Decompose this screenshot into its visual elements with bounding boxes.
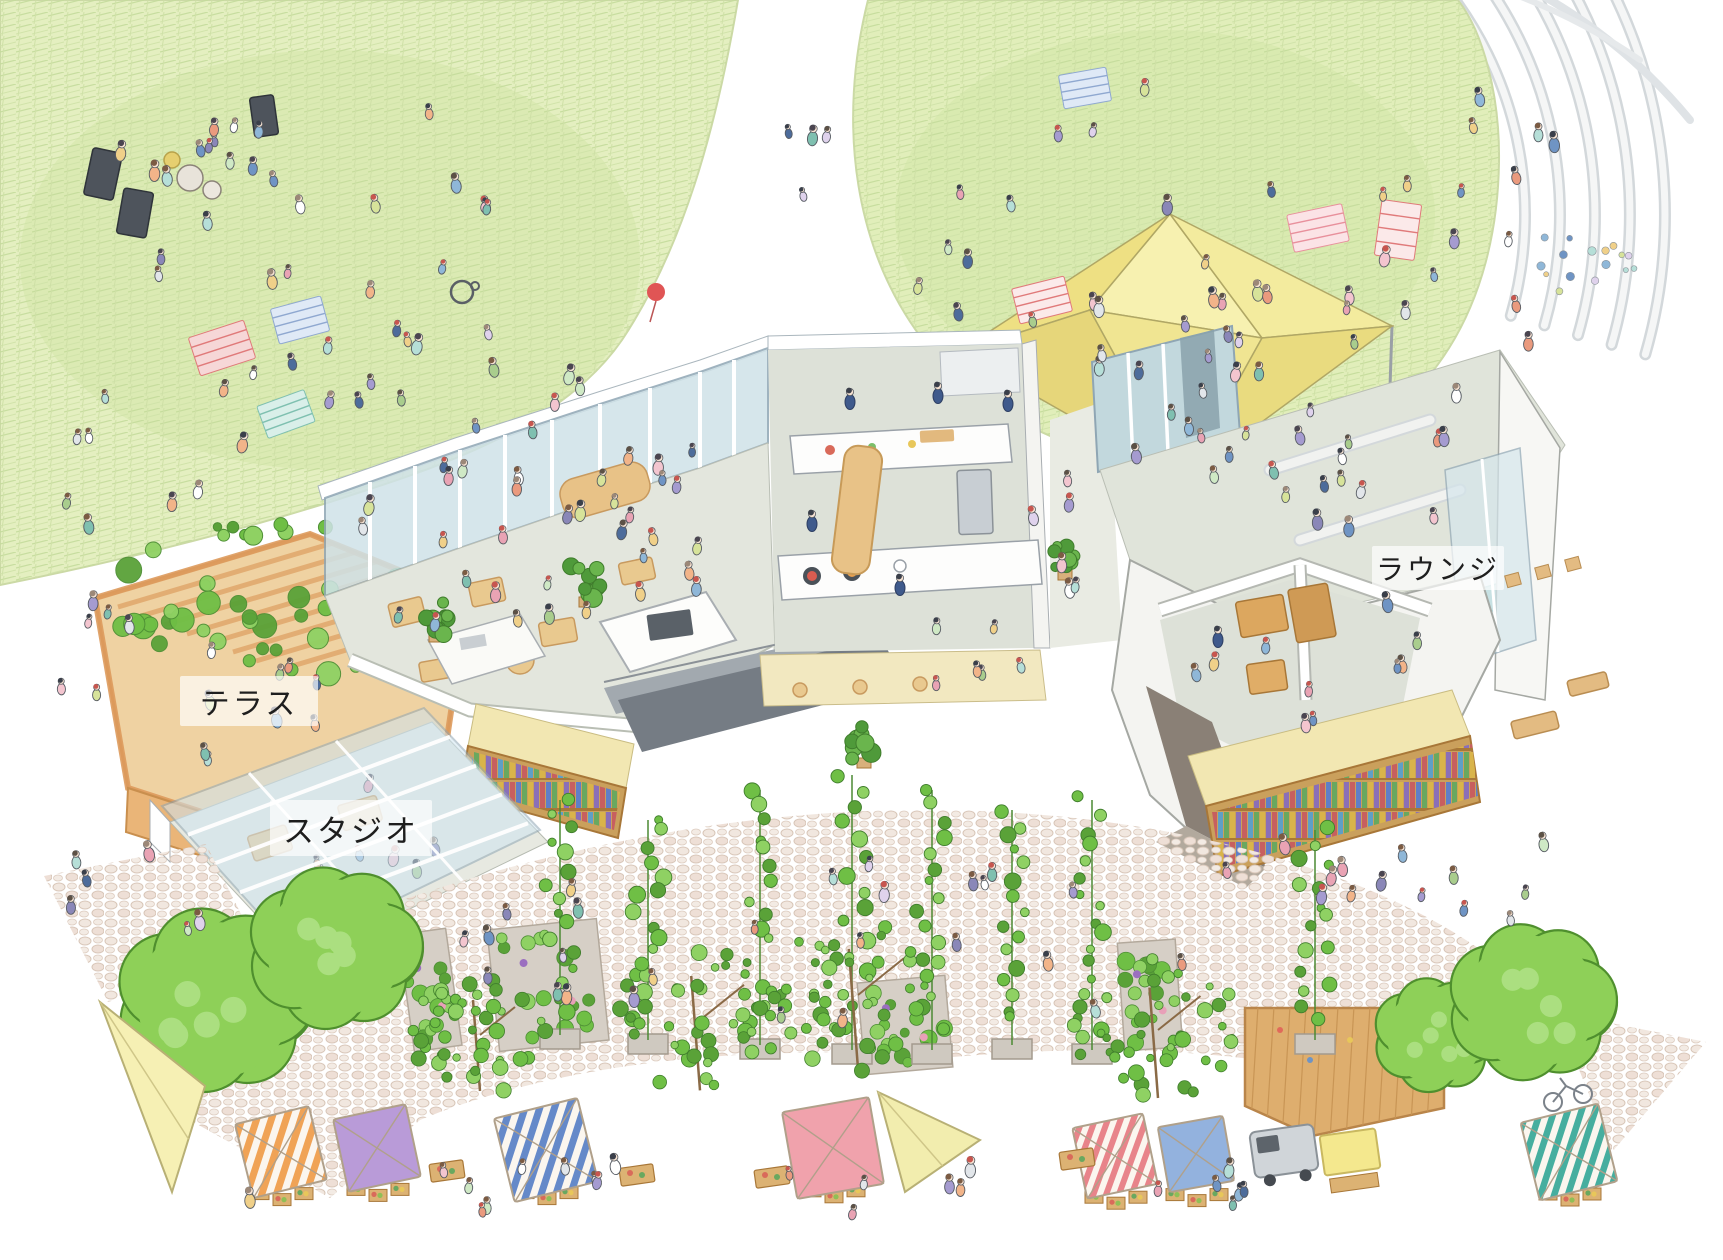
- person-part: [933, 675, 938, 680]
- stall-table: [754, 1166, 790, 1189]
- band-equipment-part: [177, 165, 203, 191]
- vine-trellis-part: [857, 786, 869, 798]
- vine-trellis-part: [1295, 966, 1306, 977]
- person-part: [1094, 362, 1104, 376]
- leafy-tree-part: [823, 980, 832, 989]
- person: [57, 678, 66, 695]
- person-part: [1398, 850, 1408, 863]
- leafy-tree-part: [785, 1027, 797, 1039]
- confetti-dots-part: [1566, 272, 1574, 280]
- illustration-canvas: テラス スタジオ ラウンジ: [0, 0, 1723, 1260]
- vine-trellis-part: [927, 992, 936, 1001]
- person-part: [124, 620, 134, 634]
- terrace-vines-part: [243, 655, 255, 667]
- person: [932, 617, 941, 635]
- leafy-tree-part: [905, 947, 916, 958]
- stall-canopy: [494, 1098, 598, 1205]
- person-part: [226, 157, 235, 169]
- confetti-dots-part: [1623, 268, 1628, 273]
- leafy-tree-part: [1124, 1047, 1135, 1058]
- person-part: [1281, 491, 1290, 503]
- staff-person-part: [1004, 390, 1010, 396]
- vine-wall-part: [1169, 995, 1181, 1007]
- tree-part: [174, 981, 200, 1007]
- leafy-tree-part: [436, 987, 448, 999]
- vine-trellis-part: [629, 886, 646, 903]
- vine-trellis-part: [651, 930, 667, 946]
- stall-canopy-part: [303, 1191, 308, 1196]
- bicycle-part: [1553, 1078, 1583, 1102]
- vine-trellis-part: [1320, 820, 1334, 834]
- stall-table-part: [1079, 1156, 1085, 1162]
- vine-trellis-part: [745, 897, 755, 907]
- leafy-tree-part: [931, 955, 945, 969]
- person: [1449, 865, 1459, 884]
- leafy-tree-part: [1137, 1030, 1145, 1038]
- person: [1521, 884, 1530, 899]
- confetti-dots-part: [1602, 247, 1610, 255]
- terrace-vines-part: [197, 591, 220, 614]
- lounge-part: [1565, 556, 1582, 571]
- person: [464, 1177, 474, 1194]
- vine-trellis-part: [857, 899, 873, 915]
- terrace-vines-part: [145, 542, 161, 558]
- confetti-dots-part: [1610, 242, 1617, 249]
- confetti-dots-part: [1588, 247, 1597, 256]
- person-part: [464, 1182, 473, 1194]
- person-part: [857, 937, 865, 948]
- person-part: [1235, 337, 1243, 348]
- person: [1401, 300, 1411, 320]
- stall-canopy-part: [1115, 1201, 1120, 1206]
- stall-canopy-part: [1585, 1190, 1590, 1195]
- stall-table-part: [627, 1170, 633, 1176]
- leafy-tree-part: [474, 1048, 489, 1063]
- leafy-tree-part: [468, 1026, 476, 1034]
- event-deck-part: [1347, 1037, 1353, 1043]
- vine-trellis-part: [1292, 878, 1306, 892]
- person-part: [1395, 659, 1399, 663]
- person-part: [550, 399, 559, 412]
- leafy-tree-part: [442, 1072, 452, 1082]
- stall-canopy: [1158, 1116, 1234, 1207]
- person: [1537, 831, 1549, 852]
- confetti-dots-part: [1541, 234, 1548, 241]
- terrace-vines-part: [307, 628, 328, 649]
- person-part: [1521, 889, 1529, 900]
- stall-table-part: [762, 1172, 768, 1178]
- person-part: [157, 254, 165, 265]
- person-part: [987, 868, 996, 881]
- leafy-tree-part: [1147, 954, 1158, 965]
- terrace-vines-part: [274, 518, 288, 532]
- person-part: [101, 393, 109, 403]
- kitchen-part: [957, 469, 993, 534]
- vine-trellis-part: [1306, 921, 1316, 931]
- leafy-tree-part: [1155, 1001, 1163, 1009]
- label-lounge: ラウンジ: [1372, 546, 1504, 590]
- vine-trellis-part: [1013, 931, 1025, 943]
- person: [1063, 470, 1071, 487]
- vine-trellis-part: [851, 831, 867, 847]
- tree-part: [1466, 936, 1599, 1069]
- balloon-part: [650, 301, 656, 322]
- person-part: [778, 1007, 783, 1012]
- stall-canopy-part: [1569, 1197, 1574, 1202]
- vine-trellis-part: [838, 915, 849, 926]
- leafy-tree-part: [430, 1018, 440, 1028]
- leafy-tree-part: [877, 931, 886, 940]
- stall-stand: [1319, 1128, 1383, 1193]
- person-part: [1167, 409, 1175, 420]
- leafy-tree-part: [1223, 988, 1235, 1000]
- vine-trellis-part: [1087, 975, 1095, 983]
- person: [1167, 404, 1175, 421]
- leafy-tree-part: [613, 1001, 629, 1017]
- staff-person-part: [1214, 626, 1220, 632]
- person: [777, 1006, 785, 1023]
- staff-person-part: [1003, 397, 1013, 412]
- staff-person-part: [895, 581, 905, 596]
- band-equipment-part: [249, 95, 278, 138]
- person-part: [1307, 407, 1314, 417]
- terrace-vines-part: [295, 609, 308, 622]
- person-part: [93, 684, 98, 689]
- vine-trellis-part: [835, 814, 849, 828]
- staff-person: [895, 574, 905, 596]
- kitchen-part: [920, 429, 955, 443]
- leafy-tree-part: [1067, 1018, 1081, 1032]
- potted-plant-part: [590, 561, 604, 575]
- stall-canopy-part: [1137, 1195, 1142, 1200]
- leafy-tree-part: [739, 988, 751, 1000]
- person-part: [1403, 180, 1411, 191]
- person-part: [610, 498, 618, 509]
- person: [88, 590, 99, 611]
- vine-trellis-part: [548, 838, 556, 846]
- person-part: [149, 166, 160, 181]
- person-part: [799, 191, 808, 202]
- person-part: [1523, 337, 1533, 351]
- person-part: [559, 952, 567, 962]
- leafy-tree-part: [1128, 1065, 1144, 1081]
- stall-canopy-part: [568, 1190, 573, 1195]
- leafy-tree-part: [866, 974, 873, 981]
- leafy-tree-part: [828, 940, 839, 951]
- vine-trellis-part: [1005, 1012, 1014, 1021]
- person-part: [988, 862, 994, 868]
- stall-truck-part-part: [1256, 1135, 1280, 1154]
- person-part: [553, 988, 562, 1001]
- vine-trellis-part: [559, 1004, 576, 1021]
- vine-trellis-part: [1310, 841, 1320, 851]
- leafy-tree-part: [1175, 1032, 1191, 1048]
- vine-trellis-part: [638, 999, 653, 1014]
- vine-trellis-part: [764, 934, 773, 943]
- staff-person-part: [1213, 633, 1223, 648]
- staff-person-part: [807, 517, 817, 532]
- stall-canopy-part: [393, 1186, 398, 1191]
- leafy-tree-part: [414, 1034, 429, 1049]
- vine-trellis-part: [539, 879, 552, 892]
- vine-trellis-part: [1020, 908, 1029, 917]
- tree-part: [1540, 995, 1562, 1017]
- stall-canopy-part: [275, 1196, 280, 1201]
- leafy-tree-part: [721, 948, 733, 960]
- person-part: [425, 108, 434, 120]
- vine-trellis-part: [1006, 890, 1019, 903]
- leafy-tree-part: [703, 1058, 712, 1067]
- person-part: [490, 588, 500, 603]
- leafy-tree-part: [905, 984, 914, 993]
- person-part: [544, 610, 554, 624]
- leafy-tree-part: [629, 1029, 639, 1039]
- vine-trellis-part: [931, 935, 945, 949]
- person: [1094, 296, 1105, 318]
- leafy-tree-part: [701, 1033, 716, 1048]
- leafy-tree-part: [671, 984, 684, 997]
- tree-part: [1431, 1012, 1447, 1028]
- person-part: [484, 972, 493, 984]
- person-part: [561, 990, 572, 1005]
- stall-stand-part: [1319, 1128, 1383, 1193]
- vine-trellis-part: [910, 904, 924, 918]
- leafy-tree-part: [1206, 983, 1213, 990]
- amphitheater-benches-part: [1520, 0, 1630, 345]
- stall-canopy-part: [371, 1192, 376, 1197]
- vine-trellis-part: [566, 821, 578, 833]
- tree-part: [1527, 1022, 1549, 1044]
- person-part: [640, 553, 647, 563]
- person-part: [439, 536, 448, 548]
- leafy-tree-part: [805, 1051, 821, 1067]
- person-part: [777, 1012, 785, 1023]
- vine-trellis-part: [848, 801, 861, 814]
- person-part: [512, 483, 522, 497]
- kitchen-part: [825, 445, 835, 455]
- leafy-tree-part: [653, 1075, 667, 1089]
- vine-trellis-part: [997, 921, 1008, 932]
- leafy-tree-part: [490, 984, 503, 997]
- label-terrace: テラス: [180, 676, 318, 726]
- vine-trellis-part: [1094, 809, 1106, 821]
- kitchen-part: [894, 560, 906, 572]
- person: [1534, 123, 1544, 142]
- person-part: [945, 1180, 955, 1194]
- person-part: [1261, 642, 1270, 654]
- leafy-tree-part: [745, 1045, 759, 1059]
- kitchen-part: [807, 571, 817, 581]
- leafy-tree-part: [909, 1002, 923, 1016]
- stall-canopy-part: [1591, 1191, 1596, 1196]
- person: [944, 239, 952, 254]
- person: [1548, 131, 1560, 153]
- person: [1504, 231, 1513, 248]
- leafy-tree-part: [1201, 1056, 1210, 1065]
- vine-trellis-part: [919, 920, 931, 932]
- terrace-vines-part: [270, 644, 282, 656]
- person-part: [1057, 559, 1067, 573]
- person-part: [1453, 383, 1459, 389]
- person-part: [443, 472, 453, 486]
- vine-trellis-part: [1009, 960, 1025, 976]
- person: [1162, 194, 1173, 216]
- person: [798, 187, 808, 202]
- leafy-tree-part: [821, 946, 829, 954]
- kitchen-part: [760, 650, 1046, 706]
- confetti-dots-part: [1567, 235, 1573, 241]
- leafy-tree-part: [635, 957, 649, 971]
- person: [1451, 383, 1461, 403]
- leafy-tree-part: [486, 999, 500, 1013]
- leafy-tree-part: [753, 1001, 768, 1016]
- person-part: [691, 582, 701, 596]
- person-part: [1439, 432, 1450, 447]
- leafy-tree-part: [1075, 1049, 1086, 1060]
- leafy-tree-part: [781, 984, 791, 994]
- person-part: [963, 255, 973, 269]
- person-part: [932, 623, 941, 635]
- person-part: [1507, 915, 1515, 926]
- person: [66, 895, 75, 914]
- vine-trellis-part: [1010, 845, 1018, 853]
- vine-trellis-part: [751, 796, 767, 812]
- balloon-part: [647, 283, 665, 301]
- person: [550, 393, 559, 412]
- person-part: [821, 131, 831, 144]
- leafy-tree-part: [411, 1051, 426, 1066]
- potted-plant-part: [579, 583, 592, 596]
- potted-plant-part: [856, 734, 874, 752]
- vine-trellis-part: [569, 964, 577, 972]
- person-part: [1162, 201, 1173, 216]
- person-part: [93, 689, 101, 700]
- person-part: [85, 433, 93, 444]
- vine-wall-part: [900, 1028, 910, 1038]
- vine-trellis-part: [997, 973, 1009, 985]
- vine-trellis-part: [548, 810, 556, 818]
- person-part: [209, 123, 219, 136]
- leafy-tree-part: [863, 999, 873, 1009]
- tree-part: [1554, 1022, 1576, 1044]
- leafy-tree-part: [439, 1031, 452, 1044]
- leafy-tree-part: [809, 992, 819, 1002]
- person: [856, 932, 864, 948]
- person-part: [1337, 475, 1346, 487]
- vine-trellis-part: [1322, 977, 1337, 992]
- tree-part: [194, 1012, 220, 1038]
- person: [1375, 870, 1388, 892]
- leafy-tree-part: [419, 996, 429, 1006]
- stall-canopy-part: [782, 1097, 884, 1199]
- stall-canopy-part: [281, 1197, 286, 1202]
- person: [1397, 844, 1408, 863]
- label-studio: スタジオ: [270, 800, 432, 856]
- leafy-tree-part: [671, 1041, 679, 1049]
- leafy-tree-part: [1215, 1060, 1227, 1072]
- vine-trellis-part: [557, 844, 573, 860]
- vine-trellis-part: [763, 859, 776, 872]
- vine-wall-part: [1128, 986, 1142, 1000]
- vine-trellis-part: [916, 953, 930, 967]
- person: [512, 476, 522, 496]
- person-part: [879, 888, 890, 903]
- person-part: [1240, 1186, 1248, 1198]
- stall-canopy-part: [1190, 1197, 1195, 1202]
- person-part: [1534, 129, 1543, 142]
- kitchen-part: [940, 348, 1020, 396]
- terrace-vines-part: [213, 523, 222, 532]
- person-part: [1184, 422, 1194, 435]
- vine-trellis-part: [1006, 989, 1019, 1002]
- stall-table: [1059, 1148, 1095, 1171]
- vine-trellis-part: [1086, 945, 1094, 953]
- leafy-tree-part: [513, 1052, 528, 1067]
- person-part: [1449, 235, 1459, 249]
- kitchen-part: [913, 677, 927, 691]
- person-part: [965, 1163, 976, 1178]
- event-deck-part: [1277, 1027, 1283, 1033]
- person-part: [956, 1184, 965, 1197]
- vine-trellis-part: [838, 868, 855, 885]
- vine-trellis-part: [1004, 873, 1021, 890]
- leafy-tree-part: [1148, 974, 1161, 987]
- person-part: [1225, 451, 1233, 462]
- leafy-tree-part: [1182, 993, 1191, 1002]
- potted-plant-part: [573, 562, 585, 574]
- person-part: [67, 895, 73, 901]
- band-equipment-part: [203, 181, 221, 199]
- person-part: [688, 447, 695, 457]
- vine-trellis-part: [1102, 993, 1112, 1003]
- person: [963, 248, 973, 268]
- leafy-tree-part: [537, 1017, 545, 1025]
- vine-trellis-part: [831, 770, 844, 783]
- person: [226, 152, 235, 170]
- staff-person-part: [933, 389, 943, 404]
- person: [945, 1174, 955, 1194]
- stall-canopy: [333, 1104, 421, 1201]
- leafy-tree-part: [1147, 1054, 1154, 1061]
- vine-trellis-part: [924, 848, 936, 860]
- vine-trellis-part: [759, 908, 772, 921]
- person: [93, 684, 101, 701]
- tree-part: [1407, 1042, 1423, 1058]
- person-part: [478, 1207, 486, 1218]
- leafy-tree-part: [768, 991, 781, 1004]
- stall-canopy-part: [1563, 1196, 1568, 1201]
- vine-trellis-part: [756, 840, 770, 854]
- person: [484, 967, 493, 985]
- terrace-vines-part: [200, 576, 215, 591]
- person: [1057, 552, 1068, 573]
- confetti-dots-part: [1625, 252, 1632, 259]
- kitchen-part: [853, 680, 867, 694]
- stall-stand-part-part: [1330, 1172, 1379, 1193]
- vine-trellis-part: [554, 909, 562, 917]
- person: [1344, 515, 1355, 537]
- person-part: [629, 993, 640, 1008]
- person: [544, 604, 554, 625]
- person: [848, 1203, 859, 1220]
- person: [71, 850, 81, 869]
- leafy-tree-part: [811, 959, 819, 967]
- leafy-tree-part: [1079, 989, 1090, 1000]
- leafy-tree-part: [1162, 971, 1174, 983]
- terrace-vines-part: [227, 521, 239, 533]
- stall-table-part: [1067, 1154, 1073, 1160]
- terrace-vines-part: [116, 557, 142, 583]
